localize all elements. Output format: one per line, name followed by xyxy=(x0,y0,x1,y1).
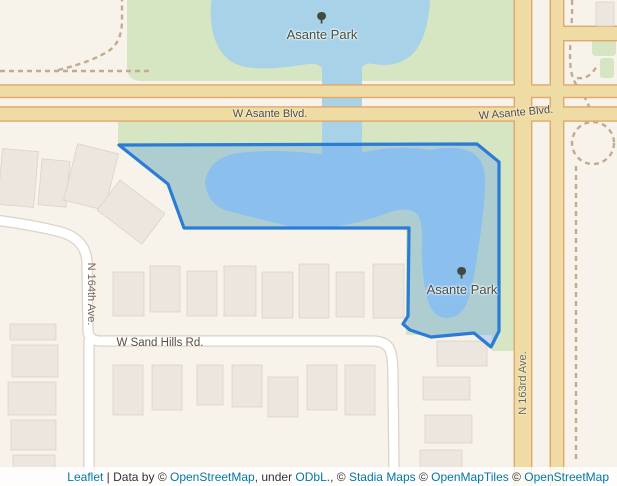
map-canvas[interactable]: Asante Park Asante Park W Asante Blvd. W… xyxy=(0,0,617,486)
odbl-link[interactable]: ODbL. xyxy=(295,470,330,484)
attribution-text: © xyxy=(416,470,432,484)
openstreetmap-link[interactable]: OpenStreetMap xyxy=(170,470,255,484)
attribution-separator: | xyxy=(103,470,113,484)
attribution-text: © xyxy=(509,470,525,484)
attribution-bar: Leaflet | Data by © OpenStreetMap, under… xyxy=(0,467,617,486)
stadia-maps-link[interactable]: Stadia Maps xyxy=(349,470,416,484)
map-tiles xyxy=(0,0,617,486)
attribution-text: , under xyxy=(255,470,296,484)
leaflet-link[interactable]: Leaflet xyxy=(67,470,103,484)
openstreetmap-link-2[interactable]: OpenStreetMap xyxy=(524,470,609,484)
attribution-text: Data by © xyxy=(113,470,170,484)
residential-roads xyxy=(0,220,394,486)
attribution-text: , © xyxy=(330,470,349,484)
openmaptiles-link[interactable]: OpenMapTiles xyxy=(431,470,509,484)
green-patch xyxy=(600,58,614,78)
pond-north xyxy=(211,0,430,72)
